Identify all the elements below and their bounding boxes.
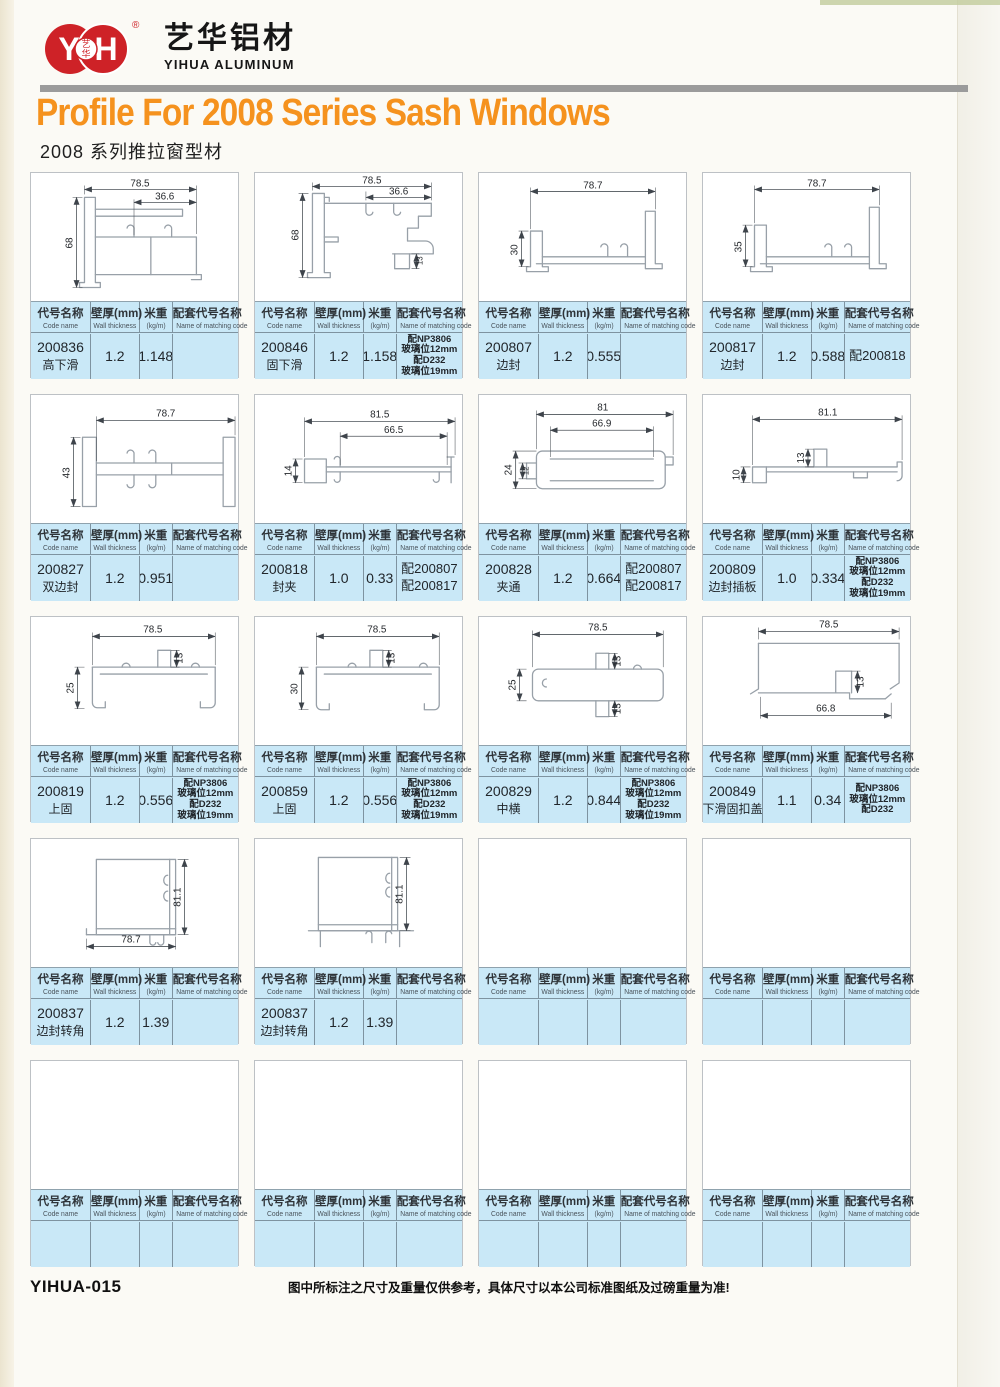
spec-header-weight: 米重 (kg/m) [140, 302, 173, 333]
profile-drawing: 81 66.9 24 12 [479, 395, 686, 523]
spec-cell-weight: 0.556 [140, 778, 173, 823]
logo-monogram-right: H [94, 31, 117, 67]
spec-header-code-name: 代号名称 Code name [255, 524, 315, 555]
spec-table: 代号名称 Code name 壁厚(mm) Wall thickness 米重 … [31, 745, 238, 823]
spec-header-matching-code: 配套代号名称 Name of matching code [621, 524, 686, 555]
spec-header-weight: 米重 (kg/m) [812, 746, 845, 777]
spec-header-en: Code name [482, 543, 535, 552]
spec-header-matching-code: 配套代号名称 Name of matching code [621, 302, 686, 333]
spec-header-en: (kg/m) [589, 321, 618, 330]
spec-header-wall-thickness: 壁厚(mm) Wall thickness [91, 524, 140, 555]
profile-drawing: 78.7 43 [31, 395, 238, 523]
profile-drawing: 78.7 35 [703, 173, 910, 301]
profile-outline [532, 653, 663, 716]
spec-header-en: Wall thickness [765, 765, 808, 774]
spec-cell-thickness: 1.1 [763, 778, 812, 823]
spec-header-wall-thickness: 壁厚(mm) Wall thickness [315, 746, 364, 777]
spec-header-matching-code: 配套代号名称 Name of matching code [397, 302, 462, 333]
dim-label: 81.1 [395, 884, 406, 904]
profile-code: 200828 [485, 561, 532, 577]
wall-thickness-value: 1.0 [329, 570, 348, 586]
dim-label: 78.7 [121, 935, 140, 946]
spec-header-cn: 米重 [812, 527, 844, 543]
wall-thickness-value: 1.2 [777, 348, 796, 364]
profile-code: 200837 [261, 1005, 308, 1021]
spec-table: 代号名称 Code name 壁厚(mm) Wall thickness 米重 … [255, 523, 462, 601]
spec-table: 代号名称 Code name 壁厚(mm) Wall thickness 米重 … [31, 1189, 238, 1267]
profile-card-empty: 代号名称 Code name 壁厚(mm) Wall thickness 米重 … [478, 1060, 687, 1266]
weight-value: 0.33 [366, 570, 393, 586]
spec-cell-thickness: 1.0 [315, 556, 364, 601]
profile-card: 81.1 13 10 代号名称 Code name 壁厚(mm) Wall th… [702, 394, 911, 600]
brand-text: 艺华铝材 YIHUA ALUMINUM [164, 24, 296, 72]
spec-cell-code: 200819 上固 [31, 778, 91, 823]
profile-outline [305, 456, 455, 482]
spec-table-slot: 代号名称 Code name 壁厚(mm) Wall thickness 米重 … [31, 523, 238, 601]
spec-cell-weight: 1.39 [364, 1000, 397, 1045]
matching-code-value: 配NP3806 玻璃位12mm 配D232 玻璃位19mm [401, 335, 457, 378]
profile-name: 边封转角 [37, 1022, 85, 1039]
spec-header-cn: 配套代号名称 [173, 527, 238, 543]
spec-header-en: Wall thickness [93, 987, 136, 996]
dim-label: 81.5 [370, 409, 390, 420]
spec-table: 代号名称 Code name 壁厚(mm) Wall thickness 米重 … [703, 301, 910, 379]
profile-code: 200819 [37, 783, 84, 799]
spec-header-cn: 米重 [364, 749, 396, 765]
spec-header-matching-code: 配套代号名称 Name of matching code [845, 1190, 910, 1221]
drawing-area: 78.5 36.6 68 13 [255, 173, 462, 301]
spec-header-en: Wall thickness [765, 1209, 808, 1218]
spec-table: 代号名称 Code name 壁厚(mm) Wall thickness 米重 … [479, 745, 686, 823]
page-title-cn: 2008 系列推拉窗型材 [40, 138, 223, 164]
spec-header-cn: 壁厚(mm) [539, 305, 587, 321]
spec-table-slot: 代号名称 Code name 壁厚(mm) Wall thickness 米重 … [255, 523, 462, 601]
spec-table-slot: 代号名称 Code name 壁厚(mm) Wall thickness 米重 … [479, 301, 686, 379]
spec-header-en: Code name [258, 987, 311, 996]
weight-value: 0.588 [812, 348, 845, 364]
spec-header-matching-code: 配套代号名称 Name of matching code [173, 746, 238, 777]
profile-name: 边封 [497, 356, 521, 373]
spec-header-en: Wall thickness [317, 321, 360, 330]
profile-card: 78.5 36.6 68 13 代号名称 Code name 壁厚(mm) Wa… [254, 172, 463, 378]
spec-header-en: Name of matching code [176, 765, 235, 774]
dim-label: 78.5 [143, 624, 163, 635]
spec-header-cn: 米重 [588, 971, 620, 987]
profile-code: 200837 [37, 1005, 84, 1021]
profile-card-empty: 代号名称 Code name 壁厚(mm) Wall thickness 米重 … [702, 838, 911, 1044]
spec-header-en: Name of matching code [624, 321, 683, 330]
spec-table: 代号名称 Code name 壁厚(mm) Wall thickness 米重 … [31, 523, 238, 601]
spec-header-cn: 配套代号名称 [845, 305, 910, 321]
dim-label: 13 [415, 256, 424, 265]
spec-cell-code: 200859 上固 [255, 778, 315, 823]
spec-header-cn: 壁厚(mm) [91, 527, 139, 543]
weight-value: 0.556 [140, 792, 173, 808]
spec-header-cn: 米重 [588, 305, 620, 321]
spec-header-cn: 配套代号名称 [397, 971, 462, 987]
drawing-area [703, 839, 910, 967]
spec-header-code-name: 代号名称 Code name [479, 968, 539, 999]
spec-header-cn: 配套代号名称 [621, 971, 686, 987]
weight-value: 1.39 [366, 1014, 393, 1030]
matching-code-value: 配200807 配200817 [625, 561, 681, 595]
spec-header-cn: 米重 [140, 527, 172, 543]
dim-label: 78.5 [819, 620, 839, 631]
spec-header-en: Code name [706, 543, 759, 552]
spec-header-wall-thickness: 壁厚(mm) Wall thickness [763, 968, 812, 999]
profile-card-empty: 代号名称 Code name 壁厚(mm) Wall thickness 米重 … [254, 1060, 463, 1266]
spec-header-weight: 米重 (kg/m) [140, 746, 173, 777]
spec-header-wall-thickness: 壁厚(mm) Wall thickness [539, 746, 588, 777]
spec-header-cn: 代号名称 [31, 971, 90, 987]
spec-header-cn: 壁厚(mm) [315, 971, 363, 987]
profile-name: 下滑固扣盖 [703, 800, 763, 817]
brand-name-cn: 艺华铝材 [164, 24, 296, 54]
weight-value: 0.951 [140, 570, 173, 586]
profile-card: 81.1 78.7 代号名称 Code name 壁厚(mm) Wall thi… [30, 838, 239, 1044]
spec-cell-weight [812, 1000, 845, 1045]
spec-header-cn: 米重 [588, 749, 620, 765]
spec-header-cn: 代号名称 [703, 749, 762, 765]
weight-value: 1.158 [364, 348, 397, 364]
spec-header-cn: 代号名称 [31, 749, 90, 765]
spec-header-code-name: 代号名称 Code name [31, 1190, 91, 1221]
spec-header-cn: 配套代号名称 [397, 749, 462, 765]
spec-header-cn: 代号名称 [255, 305, 314, 321]
spec-header-en: Wall thickness [317, 765, 360, 774]
spec-cell-code [479, 1222, 539, 1267]
drawing-area [479, 1061, 686, 1189]
profile-code: 200817 [709, 339, 756, 355]
spec-table: 代号名称 Code name 壁厚(mm) Wall thickness 米重 … [703, 745, 910, 823]
spec-header-en: (kg/m) [589, 1209, 618, 1218]
dim-label: 81.1 [173, 887, 184, 907]
spec-cell-code: 200809 边封插板 [703, 556, 763, 601]
spec-cell-thickness [539, 1000, 588, 1045]
spec-header-en: Name of matching code [176, 987, 235, 996]
wall-thickness-value: 1.2 [105, 570, 124, 586]
spec-header-en: Code name [34, 765, 87, 774]
profile-drawing: 78.7 30 [479, 173, 686, 301]
spec-header-en: (kg/m) [589, 765, 618, 774]
spec-header-en: Wall thickness [93, 765, 136, 774]
spec-header-weight: 米重 (kg/m) [812, 1190, 845, 1221]
profile-drawing: 78.5 13 66.8 [703, 617, 910, 745]
spec-header-en: Name of matching code [400, 321, 459, 330]
spec-cell-code: 200846 固下滑 [255, 334, 315, 379]
spec-header-en: (kg/m) [141, 987, 170, 996]
spec-header-cn: 壁厚(mm) [315, 527, 363, 543]
spec-cell-weight [812, 1222, 845, 1267]
profile-outline [86, 859, 175, 945]
weight-value: 0.556 [364, 792, 397, 808]
spec-header-en: Wall thickness [541, 321, 584, 330]
spec-table: 代号名称 Code name 壁厚(mm) Wall thickness 米重 … [255, 1189, 462, 1267]
spec-header-code-name: 代号名称 Code name [255, 746, 315, 777]
spec-header-weight: 米重 (kg/m) [364, 524, 397, 555]
spec-header-cn: 米重 [812, 971, 844, 987]
profile-outline [751, 207, 887, 271]
dimensions: 78.7 43 [62, 408, 235, 506]
spec-header-code-name: 代号名称 Code name [31, 746, 91, 777]
profile-drawing: 81.5 66.5 14 [255, 395, 462, 523]
dim-label: 36.6 [389, 186, 409, 197]
spec-header-en: Wall thickness [317, 543, 360, 552]
spec-header-code-name: 代号名称 Code name [31, 524, 91, 555]
spec-header-en: (kg/m) [589, 543, 618, 552]
spec-cell-matching: 配200807 配200817 [621, 556, 686, 601]
spec-header-cn: 代号名称 [703, 971, 762, 987]
spec-header-cn: 米重 [140, 749, 172, 765]
spec-header-cn: 代号名称 [479, 305, 538, 321]
spec-cell-weight: 0.951 [140, 556, 173, 601]
spec-table-slot: 代号名称 Code name 壁厚(mm) Wall thickness 米重 … [479, 523, 686, 601]
spec-cell-thickness: 1.2 [539, 778, 588, 823]
catalog-page: { "header": { "logo_monogram_left": "Y",… [0, 0, 1000, 1387]
spec-header-wall-thickness: 壁厚(mm) Wall thickness [539, 968, 588, 999]
spec-header-wall-thickness: 壁厚(mm) Wall thickness [763, 524, 812, 555]
profile-drawing: 78.5 13 30 [255, 617, 462, 745]
spec-header-en: Wall thickness [93, 543, 136, 552]
profile-code: 200818 [261, 561, 308, 577]
spec-cell-weight: 1.158 [364, 334, 397, 379]
spec-header-cn: 配套代号名称 [845, 527, 910, 543]
dim-label: 13 [613, 703, 624, 715]
spec-header-en: Name of matching code [400, 765, 459, 774]
dimensions: 78.7 30 [510, 180, 656, 266]
spec-header-en: Code name [34, 543, 87, 552]
wall-thickness-value: 1.2 [553, 792, 572, 808]
dimensions: 81 66.9 24 12 [504, 402, 673, 488]
spec-header-cn: 代号名称 [31, 305, 90, 321]
profile-drawing-empty [703, 1061, 910, 1189]
profile-name: 双边封 [43, 578, 79, 595]
drawing-area: 78.5 36.6 68 [31, 173, 238, 301]
spec-header-cn: 代号名称 [479, 749, 538, 765]
spec-header-wall-thickness: 壁厚(mm) Wall thickness [763, 302, 812, 333]
spec-header-matching-code: 配套代号名称 Name of matching code [845, 746, 910, 777]
spec-header-en: Wall thickness [541, 765, 584, 774]
spec-header-matching-code: 配套代号名称 Name of matching code [173, 302, 238, 333]
spec-cell-code: 200828 夹通 [479, 556, 539, 601]
spec-cell-matching: 配NP3806 玻璃位12mm 配D232 [845, 778, 910, 823]
spec-cell-matching: 配200818 [845, 334, 910, 379]
spec-header-weight: 米重 (kg/m) [588, 968, 621, 999]
profile-outline [751, 643, 900, 698]
spec-header-en: Code name [34, 987, 87, 996]
profile-name: 上固 [273, 800, 297, 817]
profile-drawing-empty [255, 1061, 462, 1189]
spec-header-code-name: 代号名称 Code name [255, 968, 315, 999]
spec-table-slot: 代号名称 Code name 壁厚(mm) Wall thickness 米重 … [31, 1189, 238, 1267]
dim-label: 35 [734, 241, 745, 253]
spec-header-cn: 配套代号名称 [845, 749, 910, 765]
spec-header-code-name: 代号名称 Code name [703, 968, 763, 999]
spec-header-en: Code name [706, 765, 759, 774]
spec-header-weight: 米重 (kg/m) [364, 746, 397, 777]
spec-cell-code: 200818 封夹 [255, 556, 315, 601]
spec-header-cn: 壁厚(mm) [91, 971, 139, 987]
spec-table: 代号名称 Code name 壁厚(mm) Wall thickness 米重 … [479, 967, 686, 1045]
dim-label: 66.8 [816, 704, 836, 715]
spec-header-en: Code name [482, 987, 535, 996]
spec-cell-weight [588, 1222, 621, 1267]
dimensions: 81.1 [395, 857, 411, 930]
spec-header-cn: 配套代号名称 [621, 749, 686, 765]
spec-cell-weight: 1.39 [140, 1000, 173, 1045]
spec-header-cn: 米重 [364, 971, 396, 987]
spec-header-cn: 代号名称 [255, 971, 314, 987]
spec-header-en: (kg/m) [141, 765, 170, 774]
spec-header-cn: 配套代号名称 [621, 527, 686, 543]
spec-header-cn: 米重 [140, 971, 172, 987]
spec-header-cn: 壁厚(mm) [763, 305, 811, 321]
spec-header-cn: 壁厚(mm) [763, 749, 811, 765]
profile-name: 边封插板 [709, 578, 757, 595]
spec-header-cn: 代号名称 [479, 1193, 538, 1209]
spec-cell-thickness: 1.2 [539, 334, 588, 379]
profile-card: 78.7 35 代号名称 Code name 壁厚(mm) Wall thick… [702, 172, 911, 378]
spec-header-matching-code: 配套代号名称 Name of matching code [397, 746, 462, 777]
spec-cell-thickness [539, 1222, 588, 1267]
spec-header-cn: 米重 [364, 527, 396, 543]
dim-label: 78.7 [583, 180, 602, 191]
spec-header-matching-code: 配套代号名称 Name of matching code [621, 968, 686, 999]
spec-header-en: Name of matching code [624, 987, 683, 996]
spec-header-matching-code: 配套代号名称 Name of matching code [397, 524, 462, 555]
weight-value: 0.664 [588, 570, 621, 586]
spec-header-en: Name of matching code [624, 765, 683, 774]
spec-cell-matching: 配NP3806 玻璃位12mm 配D232 玻璃位19mm [845, 556, 910, 601]
spec-header-cn: 代号名称 [255, 527, 314, 543]
profile-card: 78.5 13 25 代号名称 Code name 壁厚(mm) Wall th… [30, 616, 239, 822]
dim-label: 25 [66, 682, 77, 694]
spec-header-cn: 壁厚(mm) [91, 1193, 139, 1209]
wall-thickness-value: 1.2 [553, 348, 572, 364]
spec-header-en: Wall thickness [317, 987, 360, 996]
spec-table-slot: 代号名称 Code name 壁厚(mm) Wall thickness 米重 … [479, 1189, 686, 1267]
page-code: YIHUA-015 [30, 1277, 288, 1297]
spec-header-en: (kg/m) [813, 987, 842, 996]
dim-label: 36.6 [155, 191, 175, 202]
spec-cell-matching [397, 1000, 462, 1045]
profile-name: 高下滑 [43, 356, 79, 373]
profile-drawing: 81.1 [255, 839, 462, 967]
profile-drawing-empty [479, 839, 686, 967]
spec-cell-weight: 0.556 [364, 778, 397, 823]
profile-grid: 78.5 36.6 68 代号名称 Code name 壁厚(mm) Wall … [30, 172, 911, 1266]
spec-header-wall-thickness: 壁厚(mm) Wall thickness [315, 302, 364, 333]
scan-edge-right [957, 0, 1000, 1387]
scan-edge-left [0, 0, 14, 1387]
spec-header-cn: 代号名称 [703, 527, 762, 543]
spec-header-cn: 代号名称 [479, 971, 538, 987]
spec-header-en: Name of matching code [400, 543, 459, 552]
spec-header-cn: 壁厚(mm) [315, 1193, 363, 1209]
dim-label: 78.5 [367, 624, 387, 635]
profile-outline [753, 449, 903, 483]
drawing-area: 78.5 13 25 [31, 617, 238, 745]
spec-header-en: (kg/m) [365, 987, 394, 996]
spec-cell-thickness: 1.2 [315, 1000, 364, 1045]
spec-header-cn: 壁厚(mm) [315, 305, 363, 321]
drawing-area [255, 1061, 462, 1189]
spec-cell-code [255, 1222, 315, 1267]
drawing-area: 78.7 30 [479, 173, 686, 301]
profile-code: 200829 [485, 783, 532, 799]
spec-header-en: (kg/m) [365, 543, 394, 552]
spec-header-en: Wall thickness [93, 1209, 136, 1218]
spec-header-en: Wall thickness [541, 987, 584, 996]
spec-header-en: Wall thickness [765, 543, 808, 552]
spec-header-en: Code name [258, 1209, 311, 1218]
spec-cell-weight: 0.588 [812, 334, 845, 379]
spec-cell-code [703, 1222, 763, 1267]
profile-name: 封夹 [273, 578, 297, 595]
profile-name: 固下滑 [267, 356, 303, 373]
spec-header-weight: 米重 (kg/m) [364, 1190, 397, 1221]
dimensions: 78.5 13 66.8 [758, 620, 899, 719]
spec-table-slot: 代号名称 Code name 壁厚(mm) Wall thickness 米重 … [31, 301, 238, 379]
spec-cell-matching [173, 556, 238, 601]
profile-card: 78.7 30 代号名称 Code name 壁厚(mm) Wall thick… [478, 172, 687, 378]
spec-cell-thickness [315, 1222, 364, 1267]
spec-header-matching-code: 配套代号名称 Name of matching code [845, 524, 910, 555]
spec-cell-thickness: 1.2 [763, 334, 812, 379]
spec-header-cn: 配套代号名称 [397, 305, 462, 321]
spec-table: 代号名称 Code name 壁厚(mm) Wall thickness 米重 … [703, 967, 910, 1045]
profile-code: 200807 [485, 339, 532, 355]
matching-code-value: 配200818 [849, 348, 905, 365]
spec-header-weight: 米重 (kg/m) [140, 1190, 173, 1221]
spec-table-slot: 代号名称 Code name 壁厚(mm) Wall thickness 米重 … [703, 523, 910, 601]
spec-header-cn: 代号名称 [479, 527, 538, 543]
profile-drawing: 81.1 13 10 [703, 395, 910, 523]
dim-label: 13 [387, 652, 398, 664]
spec-table: 代号名称 Code name 壁厚(mm) Wall thickness 米重 … [479, 301, 686, 379]
spec-cell-matching: 配NP3806 玻璃位12mm 配D232 玻璃位19mm [397, 334, 462, 379]
page-title-en: Profile For 2008 Series Sash Windows [36, 94, 688, 134]
page-footer: YIHUA-015 图中所标注之尺寸及重量仅供参考，具体尺寸以本公司标准图纸及过… [30, 1277, 970, 1297]
dimensions: 78.7 35 [734, 178, 880, 266]
spec-header-en: (kg/m) [365, 1209, 394, 1218]
matching-code-value: 配200807 配200817 [401, 561, 457, 595]
spec-header-cn: 代号名称 [703, 1193, 762, 1209]
spec-cell-thickness: 1.2 [91, 1000, 140, 1045]
dim-label: 66.9 [592, 418, 612, 429]
spec-header-wall-thickness: 壁厚(mm) Wall thickness [763, 746, 812, 777]
profile-drawing: 81.1 78.7 [31, 839, 238, 967]
matching-code-value: 配NP3806 玻璃位12mm 配D232 玻璃位19mm [849, 557, 905, 600]
spec-header-en: Name of matching code [848, 987, 907, 996]
spec-header-cn: 米重 [812, 305, 844, 321]
profile-code: 200809 [709, 561, 756, 577]
spec-cell-code: 200849 下滑固扣盖 [703, 778, 763, 823]
spec-header-cn: 配套代号名称 [845, 1193, 910, 1209]
drawing-area: 78.5 13 66.8 [703, 617, 910, 745]
profile-outline [80, 197, 202, 287]
spec-cell-code: 200829 中横 [479, 778, 539, 823]
profile-code: 200827 [37, 561, 84, 577]
spec-header-en: Wall thickness [541, 1209, 584, 1218]
drawing-area: 81.1 78.7 [31, 839, 238, 967]
spec-header-cn: 配套代号名称 [621, 305, 686, 321]
spec-cell-thickness [91, 1222, 140, 1267]
drawing-area: 78.7 43 [31, 395, 238, 523]
spec-cell-thickness [763, 1000, 812, 1045]
spec-table-slot: 代号名称 Code name 壁厚(mm) Wall thickness 米重 … [703, 967, 910, 1045]
spec-header-cn: 配套代号名称 [397, 1193, 462, 1209]
